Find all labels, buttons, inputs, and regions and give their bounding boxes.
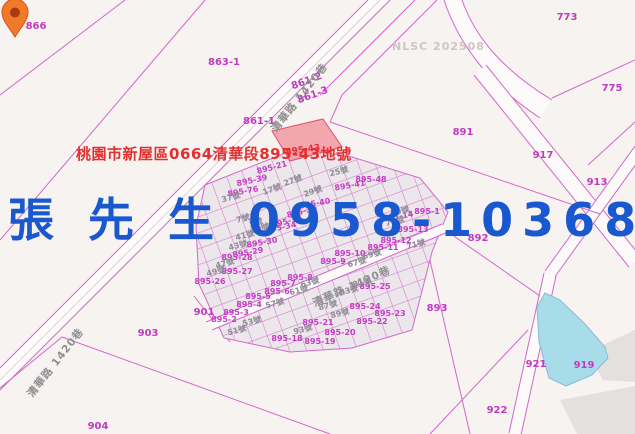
parcel-label: 895-18 bbox=[271, 335, 302, 343]
parcel-label: 893 bbox=[427, 304, 448, 314]
parcel-label: 917 bbox=[533, 151, 554, 161]
parcel-label: 895-48 bbox=[355, 176, 386, 184]
parcel-label: 773 bbox=[557, 13, 578, 23]
parcel-label: 863-1 bbox=[208, 58, 240, 68]
contact-watermark: 張 先 生 0958-103680 bbox=[8, 184, 635, 250]
parcel-label: 895-20 bbox=[324, 329, 355, 337]
parcel-label: 895-26 bbox=[194, 278, 225, 286]
parcel-label: 904 bbox=[88, 422, 109, 432]
parcel-label: 895-9 bbox=[320, 258, 346, 266]
parcel-label: 921 bbox=[526, 360, 547, 370]
parcel-label: 922 bbox=[487, 406, 508, 416]
parcel-label: 895-22 bbox=[356, 318, 387, 326]
parcel-label: 891 bbox=[453, 128, 474, 138]
cadastral-map[interactable]: 866863-177377589191791389289390390490192… bbox=[0, 0, 635, 434]
parcel-label: 903 bbox=[138, 329, 159, 339]
parcel-label: 919 bbox=[574, 361, 595, 371]
location-marker-icon[interactable] bbox=[0, 0, 30, 38]
selected-parcel-address: 桃園市新屋區0664清華段895-43地號 bbox=[76, 143, 352, 164]
parcel-label: 775 bbox=[602, 84, 623, 94]
provider-watermark: NLSC 202508 bbox=[392, 40, 485, 53]
parcel-label: 895-2 bbox=[211, 316, 237, 324]
parcel-label: 895-19 bbox=[304, 338, 335, 346]
